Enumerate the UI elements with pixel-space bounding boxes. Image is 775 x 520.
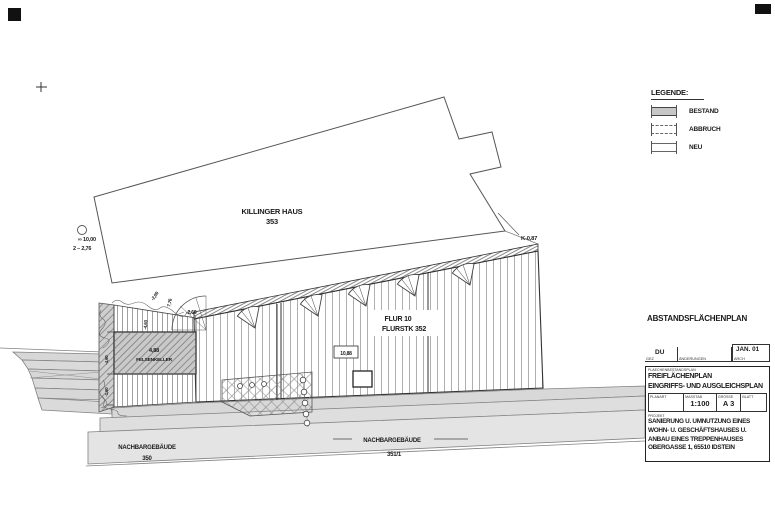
changes-cell: ÄNDERUNGEN [678,347,732,362]
datum-note-line1: ∞ 10,00 [78,237,96,243]
abbruch-swatch-icon [651,125,677,134]
dim-e: -1,60 [104,387,109,397]
legend-label: BESTAND [689,108,719,115]
plan-title-line1: FREIFLÄCHENPLAN [648,372,767,382]
sheet-heading: ABSTANDSFLÄCHENPLAN [647,314,747,323]
date-value: JAN. 01 [736,346,759,353]
neu-swatch-icon [651,143,677,152]
changes-label: ÄNDERUNGEN [679,357,706,361]
project-line-1: SANIERUNG U. UMNUTZUNG EINES [648,418,767,427]
legend-item-abbruch: ABBRUCH [651,124,720,135]
dim-d: -4,60 [143,319,149,330]
dim-b: -2,09 [150,290,160,301]
drawn-by-label: GEZ [646,357,654,361]
drawn-by-value: DU [655,349,664,356]
dim-c: 7,76 [166,298,173,308]
flur-label-line2: FLURSTK 352 [382,326,426,333]
legend-title: LEGENDE: [651,88,704,100]
plan-title-line2: EINGRIFFS- UND AUSGLEICHSPLAN [648,382,767,392]
groesse-cell: GRÖSSE A 3 [717,394,742,411]
signature-row: GEZ DU ÄNDERUNGEN JAN. 01 ARCH [645,347,770,362]
project-line-4: OBERGASSE 1, 65510 IDSTEIN [648,444,767,453]
drawn-by-cell: GEZ DU [645,347,678,362]
scale-table: PLANART MASSTAB 1:100 GRÖSSE A 3 BLATT [648,393,767,412]
flur-label-line1: FLUR 10 [385,316,412,323]
title-block: FLAECHENBESTANDSPLAN FREIFLÄCHENPLAN EIN… [645,366,770,462]
groesse-value: A 3 [717,399,741,408]
legend-item-bestand: BESTAND [651,106,719,117]
project-line-3: ANBAU EINES TREPPENHAUSES [648,436,767,445]
dim-d2: -4,60 [104,355,109,365]
parcel-killinger-haus [78,97,539,283]
neighbor-left-number: 350 [142,456,152,462]
legend-label: ABBRUCH [689,126,720,133]
killinger-haus-number: 353 [266,217,278,226]
planart-header: PLANART [649,394,683,399]
killinger-haus-label: KILLINGER HAUS [242,207,303,216]
datum-note-line2: 2 – 2,76 [73,246,91,252]
date-label: ARCH [734,357,745,361]
cellar-label: FELSENKELLER [136,357,172,363]
cellar-value: 4,88 [149,348,159,354]
neighbor-right-number: 351/1 [387,452,402,458]
massstab-cell: MASSTAB 1:100 [684,394,717,411]
planart-cell: PLANART [649,394,684,411]
blatt-cell: BLATT [741,394,766,411]
neighbor-right-label: NACHBARGEBÄUDE [363,437,421,444]
legend-item-neu: NEU [651,142,702,153]
bestand-swatch-icon [651,107,677,116]
site-plan-sheet: ∞ 10,00 2 – 2,76 KILLINGER HAUS 353 10,8… [0,0,775,520]
date-cell: JAN. 01 ARCH [732,344,770,362]
registration-marks [8,4,771,92]
dim-a: -2,66 [186,310,197,316]
blatt-header: BLATT [741,394,766,399]
corner-annotation: K-0,87 [521,236,537,242]
roof-box-label: 10,88 [340,351,352,357]
neighbor-left-label: NACHBARGEBÄUDE [118,444,176,451]
massstab-value: 1:100 [684,399,716,408]
project-line-2: WOHN- U. GESCHÄFTSHAUSES U. [648,427,767,436]
legend-label: NEU [689,144,702,151]
